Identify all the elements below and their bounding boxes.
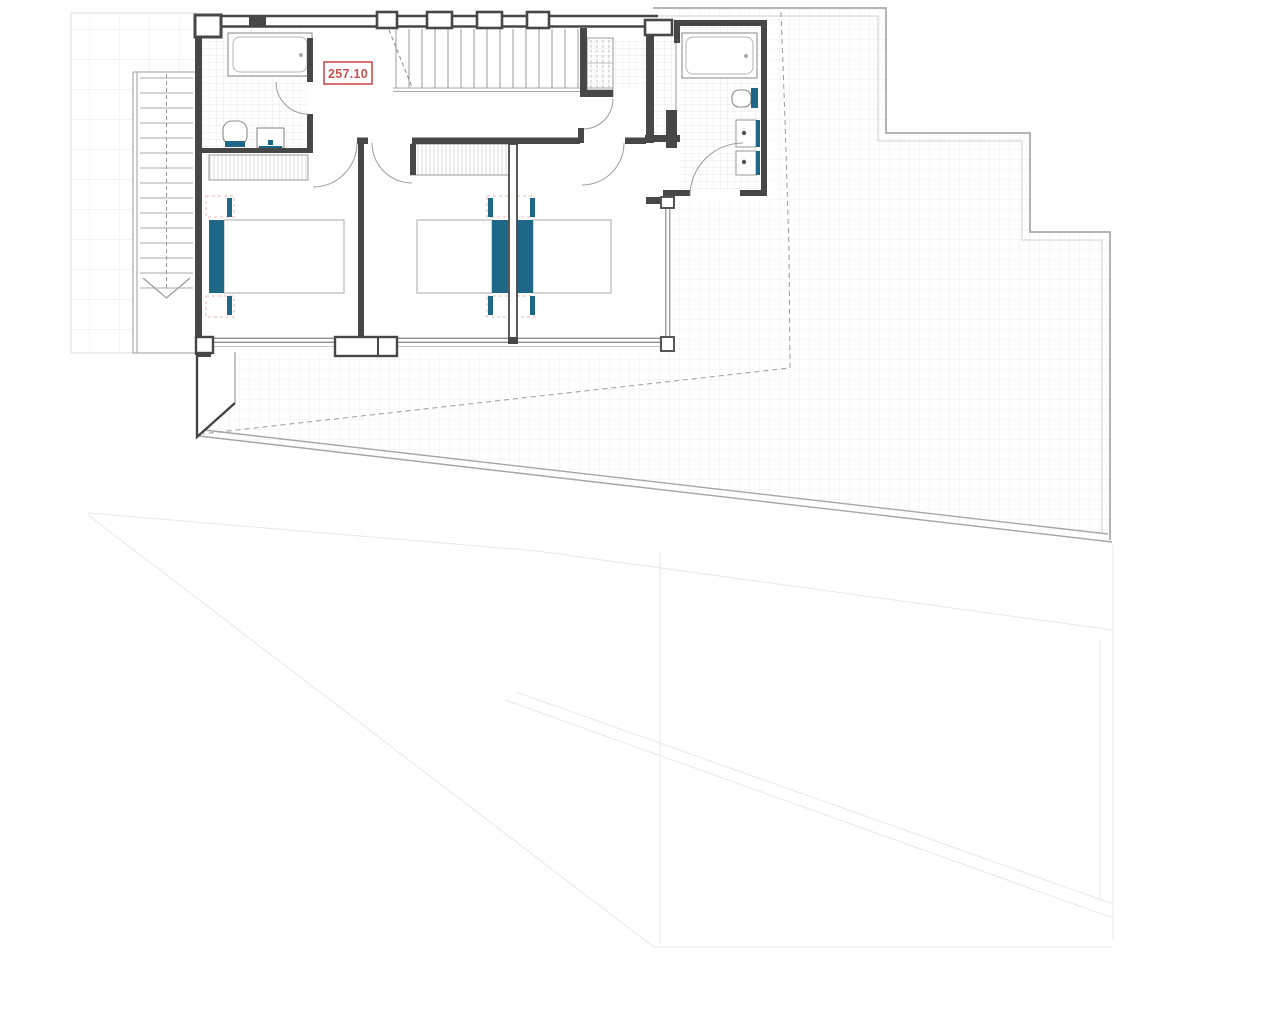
toilet-left [223,121,247,147]
wall-landing-south [587,90,613,97]
stair-landing-floor [613,38,646,90]
post-glass-north [661,197,674,208]
sink-left [257,128,284,150]
bathtub-right [682,33,757,78]
wardrobe-bedroom-1 [209,155,308,180]
drain-icon [299,53,303,57]
pillar-northwest [195,15,221,37]
bed-2-headboard [492,220,508,293]
area-label-value: 257.10 [328,67,368,81]
exterior-staircase [133,72,196,353]
wall-bathroom-left-south [198,148,313,153]
toilet-right [732,88,758,108]
wall-bathroom-right-south-a [663,190,690,196]
area-label: 257.10 [324,62,372,84]
wall-hall-east [646,22,654,143]
wall-bathroom-right-west [666,110,677,148]
post-southwest [196,337,213,353]
post-southeast [661,337,674,351]
wall-bedroom-2-3 [509,144,517,338]
wall-hall-south [412,138,580,145]
wall-bathroom-right-east [761,20,767,196]
bathtub-left [228,33,312,76]
wall-bathroom-left-east-b [307,114,313,152]
sink-right-2 [736,151,760,175]
pillar-northeast [645,20,672,35]
wall-stair-west [580,28,587,97]
bed-3-headboard [517,220,533,293]
window-mullion-box [335,337,397,356]
wall-bathroom-right-north [674,20,767,26]
wall-bedroom-1-2 [358,144,364,338]
wall-bathroom-left-east-a [307,38,313,82]
wall-bathroom-right-south-b [740,190,767,196]
wall-west [195,15,202,355]
wardrobe-bedroom-2 [411,144,510,175]
drain-icon [744,54,748,58]
floor-plan-page: 257.10 [0,0,1280,1024]
floor-plan-svg: 257.10 [0,0,1280,1024]
bed-1-headboard [209,220,224,293]
